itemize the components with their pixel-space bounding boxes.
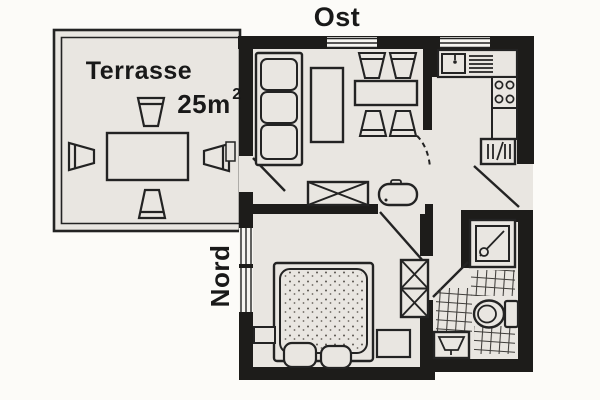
sideboard [311, 68, 343, 142]
bed-pillow-left [284, 343, 316, 367]
washbasin-drain-dot [385, 199, 388, 202]
bed-duvet-texture [282, 271, 365, 351]
wall-bath-bottom [425, 359, 533, 372]
wall-bath-right [518, 210, 533, 372]
dining-table [355, 81, 417, 105]
sofa-cushion-2 [261, 92, 297, 123]
washbasin [379, 184, 417, 205]
kitchen-sink [442, 54, 465, 73]
window-bedroom-left-2 [239, 268, 253, 312]
kitchen-cabinet [492, 108, 517, 139]
sofa-cushion-3 [261, 125, 297, 159]
toilet-bowl-inner [478, 306, 496, 323]
sofa-cushion-1 [261, 59, 297, 90]
window-kitchen-top [440, 37, 490, 48]
terrace-door-opening [239, 156, 253, 192]
nightstand [377, 330, 410, 357]
label-terrace-area: 25m [177, 89, 231, 119]
bedroom [254, 260, 428, 368]
wall-living-right [423, 47, 432, 130]
radiator [254, 327, 275, 343]
bath-tiles-patch-1 [471, 270, 515, 296]
label-ost: Ost [314, 2, 361, 32]
terrace-table [107, 133, 188, 180]
label-nord: Nord [205, 245, 235, 308]
wall-kitchen-right [517, 36, 534, 164]
window-bedroom-left-1 [239, 228, 253, 264]
shower-drain [480, 248, 488, 256]
terrace-door-threshold [226, 142, 235, 161]
floor-plan: Ost Nord Terrasse 25m 2 [0, 0, 600, 400]
bath-tiles-patch-3 [474, 326, 515, 354]
kitchen-faucet-dot [453, 60, 457, 64]
label-terrasse: Terrasse [86, 57, 192, 85]
bed-pillow-right [321, 346, 351, 368]
floor-plan-drawing: Ost Nord Terrasse 25m 2 [0, 0, 600, 400]
toilet-tank [505, 301, 518, 327]
label-terrace-area-exponent: 2 [232, 86, 241, 103]
kitchen-stove [492, 77, 517, 108]
window-living-top [327, 37, 377, 48]
bath-tiles-patch-2 [436, 288, 472, 334]
